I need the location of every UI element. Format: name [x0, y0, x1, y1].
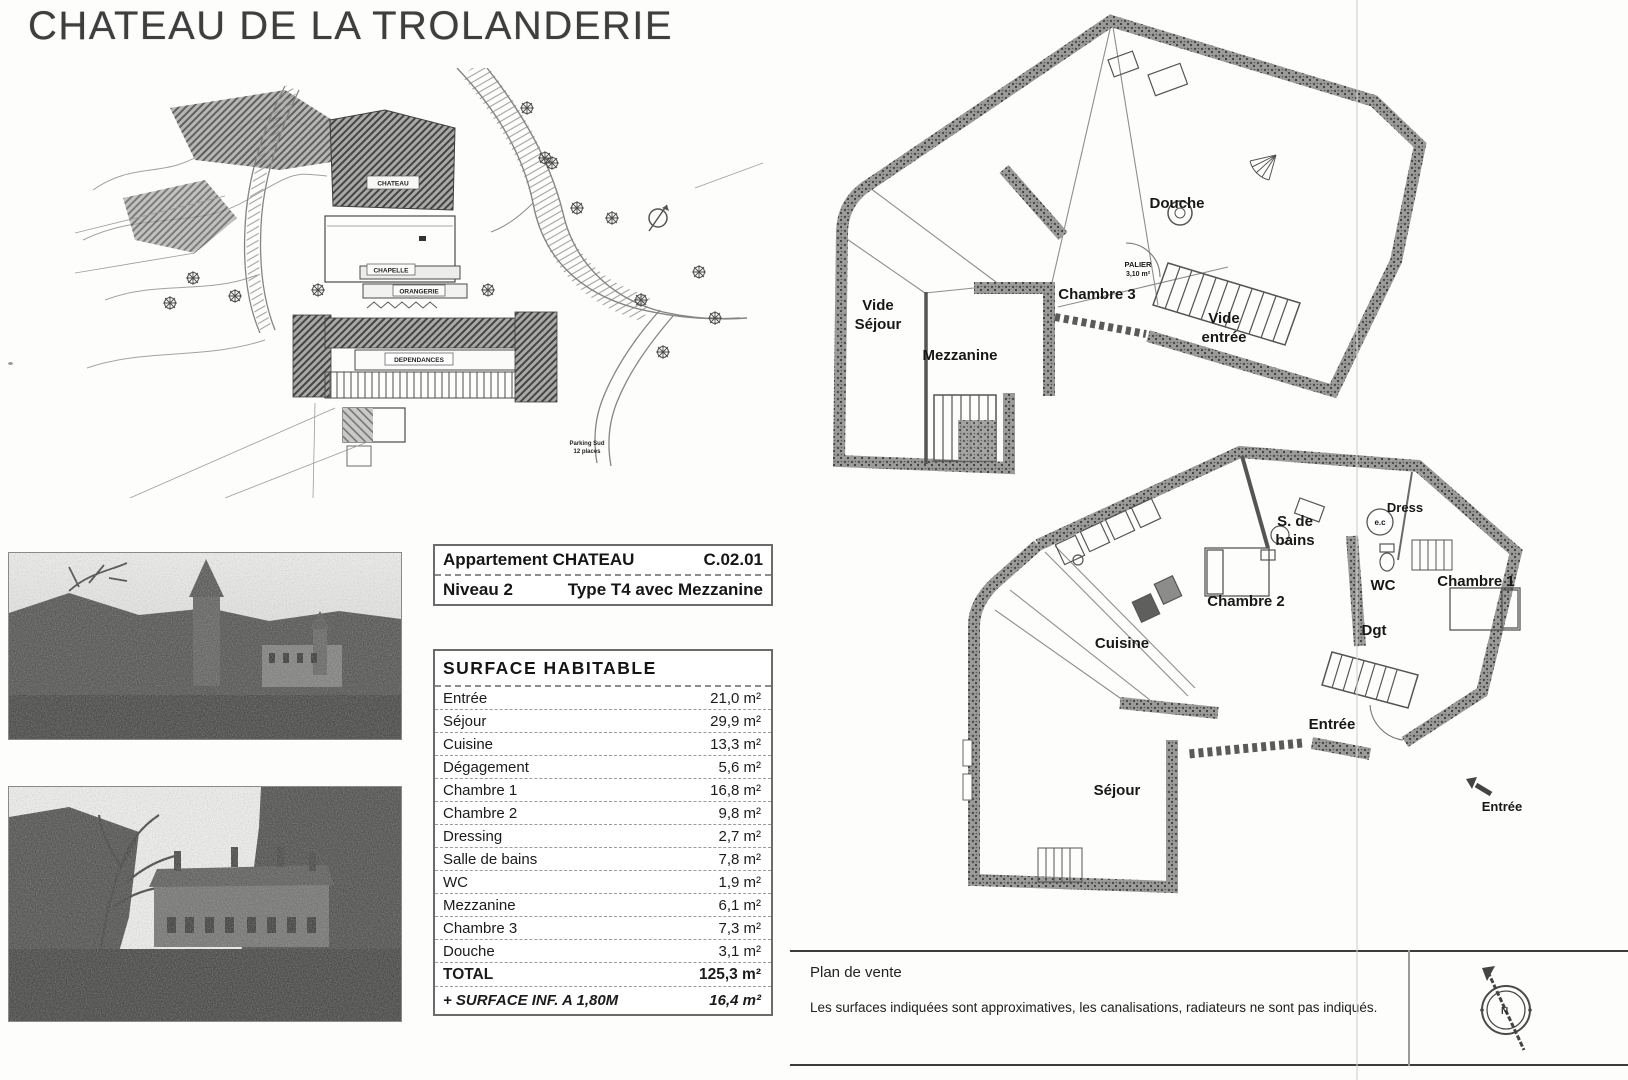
- room-area: 2,7 m²: [718, 828, 761, 845]
- floor-plan-niveau-2: e.c: [950, 440, 1540, 905]
- room-label: Salle de bains: [443, 851, 537, 868]
- room-label: Dégagement: [443, 759, 529, 776]
- room-label-palier: PALIER: [1125, 260, 1153, 269]
- footer-rule-top: [790, 950, 1628, 952]
- site-plan-drawing: CHATEAU CHAPELLE ORANGERIE DEPENDANCES P…: [75, 68, 765, 498]
- footer-fold-line: [1408, 950, 1410, 1066]
- room-label-cuisine: Cuisine: [1095, 635, 1149, 652]
- info-row: Appartement CHATEAU C.02.01: [435, 546, 771, 574]
- chateau-building: [330, 110, 455, 210]
- room-area: 5,6 m²: [718, 759, 761, 776]
- surface-row: Douche3,1 m²: [435, 940, 771, 963]
- apartment-code: C.02.01: [703, 550, 763, 570]
- room-label-vide-entree-2: entrée: [1201, 329, 1246, 346]
- room-label-palier-area: 3,10 m²: [1126, 271, 1151, 278]
- surface-row: Chambre 37,3 m²: [435, 917, 771, 940]
- footer-rule-bottom: [790, 1064, 1628, 1066]
- toilet-icon: [1380, 544, 1394, 571]
- surface-row: Salle de bains7,8 m²: [435, 848, 771, 871]
- apartment-type: Type T4 avec Mezzanine: [568, 580, 763, 600]
- surface-table: SURFACE HABITABLE Entrée21,0 m² Séjour29…: [433, 649, 773, 1016]
- label-ec: e.c: [1374, 518, 1386, 527]
- room-label-entree: Entrée: [1309, 716, 1356, 733]
- room-label: Séjour: [443, 713, 486, 730]
- room-area: 9,8 m²: [718, 805, 761, 822]
- walls: [974, 452, 1516, 887]
- total-value: 125,3 m²: [699, 966, 761, 984]
- room-label-chambre1: Chambre 1: [1437, 573, 1515, 590]
- room-area: 3,1 m²: [718, 943, 761, 960]
- room-label-chambre2: Chambre 2: [1207, 593, 1285, 610]
- entrance-arrow-icon: [1466, 777, 1491, 794]
- extra-value: 16,4 m²: [709, 992, 761, 1009]
- room-area: 1,9 m²: [718, 874, 761, 891]
- room-area: 29,9 m²: [710, 713, 761, 730]
- room-area: 21,0 m²: [710, 690, 761, 707]
- room-area: 7,3 m²: [718, 920, 761, 937]
- kitchen-fixtures: [1055, 498, 1181, 622]
- label-entree-exterior: Entrée: [1482, 799, 1522, 814]
- site-label-chateau: CHATEAU: [377, 181, 409, 188]
- page-title: CHATEAU DE LA TROLANDERIE: [28, 4, 673, 49]
- surface-row: Dressing2,7 m²: [435, 825, 771, 848]
- photo-chateau-tower: [8, 552, 402, 740]
- room-area: 7,8 m²: [718, 851, 761, 868]
- apartment-name: Appartement CHATEAU: [443, 550, 634, 570]
- room-label: WC: [443, 874, 468, 891]
- woods-patch: [123, 180, 237, 253]
- room-label-sdb: S. de: [1277, 513, 1313, 530]
- room-label-wc: WC: [1371, 577, 1396, 594]
- surface-row: WC1,9 m²: [435, 871, 771, 894]
- stairs-icon: [1322, 652, 1418, 708]
- surface-table-title: SURFACE HABITABLE: [435, 651, 771, 687]
- room-label: Douche: [443, 943, 495, 960]
- floor-plan-mezzanine-level: Vide Séjour Mezzanine Chambre 3 Douche V…: [808, 5, 1433, 490]
- mezzanine-balustrade: [1055, 317, 1146, 334]
- scanned-sale-plan-document: CHATEAU DE LA TROLANDERIE: [0, 0, 1628, 1080]
- surface-row: Cuisine13,3 m²: [435, 733, 771, 756]
- surface-extra-row: + SURFACE INF. A 1,80M16,4 m²: [435, 987, 771, 1014]
- bed-icon: [1205, 548, 1269, 596]
- room-label-sejour: Séjour: [1094, 782, 1141, 799]
- north-marker-icon: [649, 205, 669, 231]
- room-label-vide-entree: Vide: [1208, 310, 1239, 327]
- site-label-parking: Parking Sud: [569, 441, 604, 447]
- surface-row: Chambre 29,8 m²: [435, 802, 771, 825]
- room-label: Chambre 1: [443, 782, 517, 799]
- surface-row: Séjour29,9 m²: [435, 710, 771, 733]
- site-label-orangerie: ORANGERIE: [399, 289, 439, 296]
- site-label-parking-2: 12 places: [573, 449, 601, 455]
- room-label-dgt: Dgt: [1362, 622, 1387, 639]
- room-label: Chambre 2: [443, 805, 517, 822]
- room-label: Mezzanine: [443, 897, 516, 914]
- surface-row: Entrée21,0 m²: [435, 687, 771, 710]
- room-label: Entrée: [443, 690, 487, 707]
- surface-row: Chambre 116,8 m²: [435, 779, 771, 802]
- room-area: 6,1 m²: [718, 897, 761, 914]
- room-label-sdb-2: bains: [1275, 532, 1314, 549]
- info-row: Niveau 2 Type T4 avec Mezzanine: [435, 574, 771, 604]
- room-label-vide-sejour: Vide: [862, 297, 893, 314]
- page-fold-crease: [1356, 0, 1358, 1080]
- door-arc: [1370, 705, 1403, 740]
- room-area: 16,8 m²: [710, 782, 761, 799]
- entry-balustrade: [1188, 743, 1302, 754]
- footer-title: Plan de vente: [810, 964, 902, 981]
- apartment-level: Niveau 2: [443, 580, 513, 600]
- room-label: Chambre 3: [443, 920, 517, 937]
- site-label-dependances: DEPENDANCES: [394, 357, 445, 364]
- surface-row: Mezzanine6,1 m²: [435, 894, 771, 917]
- floor-lines: [995, 546, 1195, 705]
- room-label-dress: Dress: [1387, 500, 1423, 515]
- room-label-douche: Douche: [1149, 195, 1204, 212]
- total-label: TOTAL: [443, 966, 493, 984]
- room-label: Cuisine: [443, 736, 493, 753]
- surface-row: Dégagement5,6 m²: [435, 756, 771, 779]
- photo-chateau-park: [8, 786, 402, 1022]
- room-label-mezzanine: Mezzanine: [922, 347, 997, 364]
- scan-speck: [8, 362, 13, 365]
- dependances-buildings: DEPENDANCES: [293, 312, 557, 402]
- apartment-info-table: Appartement CHATEAU C.02.01 Niveau 2 Typ…: [433, 544, 773, 606]
- compass-icon: N: [1468, 962, 1548, 1057]
- extra-label: + SURFACE INF. A 1,80M: [443, 992, 618, 1009]
- room-area: 13,3 m²: [710, 736, 761, 753]
- room-label-vide-sejour-2: Séjour: [855, 316, 902, 333]
- room-label: Dressing: [443, 828, 502, 845]
- site-label-chapelle: CHAPELLE: [373, 268, 409, 275]
- footer-disclaimer: Les surfaces indiquées sont approximativ…: [810, 998, 1395, 1019]
- room-label-chambre3: Chambre 3: [1058, 286, 1136, 303]
- wardrobe-icon: [1412, 540, 1452, 570]
- compass-north-label: N: [1501, 1006, 1508, 1017]
- surface-total-row: TOTAL125,3 m²: [435, 963, 771, 987]
